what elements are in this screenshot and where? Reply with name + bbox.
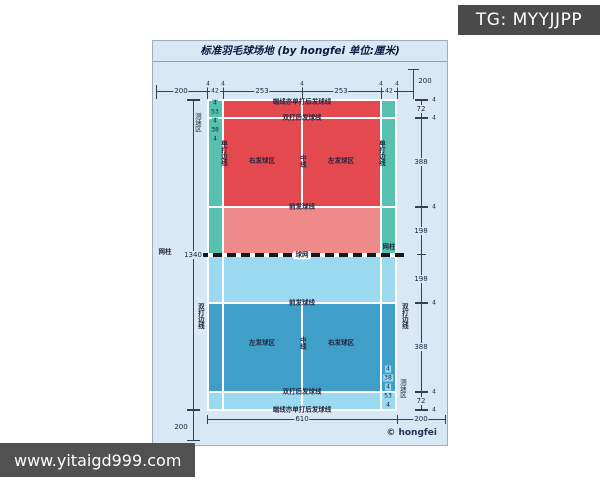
upper-side-alley-right <box>382 101 395 253</box>
dim-top-253: 253 <box>254 87 269 95</box>
dim-right-4: 4 <box>431 389 437 396</box>
singles-sideline-label-right: 单打边线 <box>378 140 385 166</box>
dim-top-4: 4 <box>220 81 226 88</box>
dim-right-198: 198 <box>413 275 428 283</box>
dim-top-4: 4 <box>299 81 305 88</box>
dim-right-4: 4 <box>431 407 437 414</box>
dim-bottom-200: 200 <box>413 415 428 423</box>
dim-tick <box>207 415 208 424</box>
net-label: 球网 <box>294 251 311 259</box>
dim-tick <box>415 117 428 119</box>
dim-tick <box>415 409 428 411</box>
dim-right-388: 388 <box>413 158 428 166</box>
dim-left-1340: 1340 <box>183 251 203 259</box>
dim-tick <box>156 85 157 99</box>
upper-right-service-court-label: 左发球区 <box>328 157 354 165</box>
dim-bottom-610: 610 <box>294 415 309 423</box>
lower-front-court <box>209 257 395 302</box>
net-post-left-label: 网柱 <box>159 248 172 256</box>
speed-dim-38: 38 <box>383 375 393 382</box>
bottom-dimension-line <box>207 419 446 420</box>
dim-tick <box>415 99 428 101</box>
upper-front-court <box>224 208 380 253</box>
dim-tick <box>415 206 428 208</box>
endline-label-top: 端线亦单打后发球线 <box>273 98 332 106</box>
speed-dim-4: 4 <box>385 384 391 391</box>
dim-top-253: 253 <box>333 87 348 95</box>
dim-tick <box>187 99 200 101</box>
singles-sideline-label-left: 单打边线 <box>220 140 227 166</box>
dim-right-4: 4 <box>431 97 437 104</box>
dim-tick <box>417 254 426 255</box>
lower-left-service-court-label: 左发球区 <box>249 339 275 347</box>
upper-left-service-court-label: 右发球区 <box>249 157 275 165</box>
dim-right-388: 388 <box>413 343 428 351</box>
speed-dim-53: 53 <box>210 109 220 116</box>
top-right-clearance-line <box>413 69 414 99</box>
dim-top-42: 42 <box>210 88 220 95</box>
dim-bottom-left-200: 200 <box>173 423 188 431</box>
dim-tick <box>408 69 419 70</box>
doubles-sideline-label-left: 双打边线 <box>197 303 204 329</box>
speed-dim-38: 38 <box>210 127 220 134</box>
dim-top-4: 4 <box>394 81 400 88</box>
dim-tick <box>187 440 200 441</box>
dim-top-right-200: 200 <box>417 77 432 85</box>
speed-dim-4: 4 <box>212 136 218 143</box>
dim-right-4: 4 <box>431 300 437 307</box>
dim-right-72: 72 <box>416 105 427 113</box>
top-dimension-line <box>156 91 413 92</box>
dim-tick <box>415 302 428 304</box>
center-line-label-upper: 中线 <box>299 155 306 168</box>
speed-dim-4: 4 <box>385 402 391 409</box>
short-service-label-bottom: 前发球线 <box>289 299 315 307</box>
speed-zone-label-bottom: 测速区 <box>399 378 406 398</box>
dim-right-198: 198 <box>413 227 428 235</box>
short-service-label-top: 前发球线 <box>289 203 315 211</box>
speed-dim-4: 4 <box>212 100 218 107</box>
dim-right-4: 4 <box>431 115 437 122</box>
right-dimension-line <box>421 100 422 410</box>
doubles-long-service-label-bottom: 双打后发球线 <box>283 388 322 396</box>
court-diagram-panel: 标准羽毛球场地 (by hongfei 单位:厘米) 200 4 42 4 25… <box>152 40 448 446</box>
badminton-court: 端线亦单打后发球线 双打后发球线 右发球区 中线 左发球区 单打边线 单打边线 … <box>207 99 397 411</box>
speed-zone-label-top: 测速区 <box>194 112 201 132</box>
dim-top-200: 200 <box>173 87 188 95</box>
doubles-sideline-label-right: 双打边线 <box>401 303 408 329</box>
speed-dim-4: 4 <box>212 118 218 125</box>
diagram-title: 标准羽毛球场地 (by hongfei 单位:厘米) <box>153 41 447 62</box>
dim-tick <box>397 415 398 424</box>
dim-top-42: 42 <box>384 88 394 95</box>
speed-dim-53: 53 <box>383 393 393 400</box>
doubles-long-service-label-top: 双打后发球线 <box>283 114 322 122</box>
dim-right-4: 4 <box>431 204 437 211</box>
center-line-label-lower: 中线 <box>299 337 306 350</box>
tg-watermark-badge: TG: MYYJJPP <box>458 5 600 35</box>
dim-tick <box>415 391 428 393</box>
bottom-left-clearance-line <box>193 411 194 441</box>
speed-dim-4: 4 <box>385 366 391 373</box>
dim-tick <box>445 415 446 424</box>
net-post-right-label: 网柱 <box>383 243 396 251</box>
copyright-text: © hongfei <box>386 428 437 438</box>
website-watermark: www.yitaigd999.com <box>0 443 195 477</box>
lower-right-service-court-label: 右发球区 <box>328 339 354 347</box>
endline-label-bottom: 端线亦单打后发球线 <box>273 406 332 414</box>
dim-right-72: 72 <box>416 397 427 405</box>
dim-top-4: 4 <box>205 81 211 88</box>
dim-top-4: 4 <box>378 81 384 88</box>
